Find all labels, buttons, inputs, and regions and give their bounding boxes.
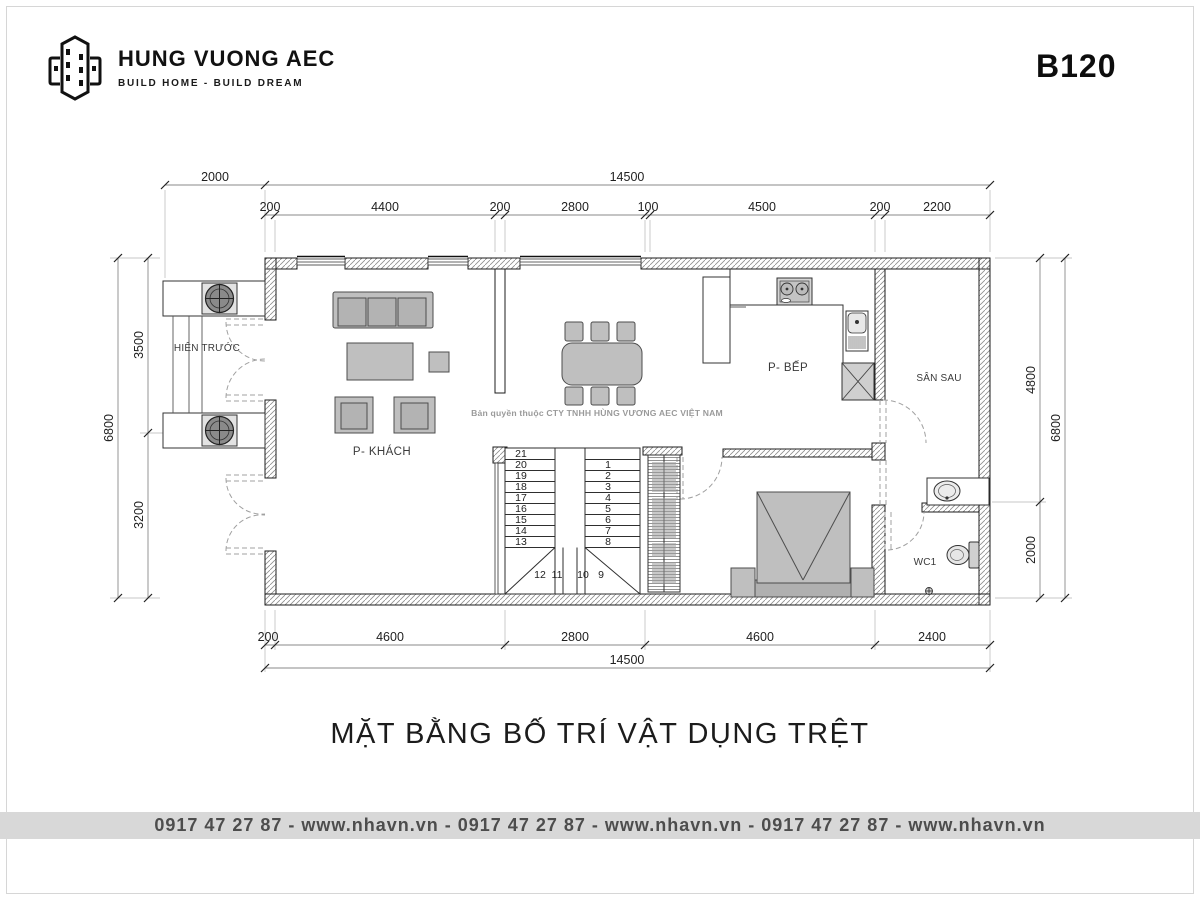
footer-contact-bar: 0917 47 27 87 - www.nhavn.vn - 0917 47 2… <box>0 812 1200 839</box>
svg-text:200: 200 <box>260 200 281 214</box>
partition-living-dining <box>495 269 505 393</box>
dining-set <box>562 322 642 405</box>
svg-text:3200: 3200 <box>132 501 146 529</box>
svg-text:4500: 4500 <box>748 200 776 214</box>
sofa <box>333 292 433 328</box>
dim-top-2000: 2000 <box>201 170 229 184</box>
bedroom <box>731 492 874 597</box>
plant-icon <box>206 285 234 313</box>
floor-drain-icon <box>926 588 933 595</box>
nightstand <box>731 568 755 597</box>
front-double-door-lower <box>226 475 265 554</box>
svg-text:13: 13 <box>515 536 527 548</box>
coffee-table <box>347 343 413 380</box>
armchair <box>394 397 435 433</box>
svg-text:100: 100 <box>638 200 659 214</box>
porch <box>163 281 265 448</box>
svg-text:14500: 14500 <box>610 653 645 667</box>
svg-text:8: 8 <box>605 536 611 548</box>
label-porch: HIÊN TRƯỚC <box>174 341 240 354</box>
louver-screen <box>648 455 680 592</box>
toilet-icon <box>947 542 979 568</box>
svg-text:4600: 4600 <box>746 630 774 644</box>
bed <box>757 492 850 583</box>
svg-text:200: 200 <box>258 630 279 644</box>
label-kitchen: P- BẾP <box>768 361 808 374</box>
svg-text:12: 12 <box>534 569 546 581</box>
drawing-sheet: HUNG VUONG AEC BUILD HOME - BUILD DREAM … <box>0 0 1200 900</box>
window-icon <box>428 257 468 266</box>
corridor-dashes <box>880 460 886 505</box>
svg-text:200: 200 <box>870 200 891 214</box>
fridge-space-icon <box>842 363 874 400</box>
svg-text:6800: 6800 <box>102 414 116 442</box>
dining-chair <box>591 387 609 405</box>
svg-text:4400: 4400 <box>371 200 399 214</box>
dining-table <box>562 343 642 385</box>
svg-text:10: 10 <box>577 569 589 581</box>
side-table <box>429 352 449 372</box>
svg-text:2800: 2800 <box>561 200 589 214</box>
svg-text:9: 9 <box>598 569 604 581</box>
svg-text:11: 11 <box>552 569 563 581</box>
dining-chair <box>591 322 609 341</box>
front-double-door-upper <box>226 319 265 401</box>
kitchen-cabinet <box>703 277 730 363</box>
basin-icon <box>927 478 989 505</box>
label-backyard: SÂN SAU <box>916 371 961 384</box>
svg-text:4600: 4600 <box>376 630 404 644</box>
svg-text:3500: 3500 <box>132 331 146 359</box>
svg-text:2200: 2200 <box>923 200 951 214</box>
kitchen-sink-icon <box>846 311 868 351</box>
plant-icon <box>206 417 234 445</box>
armchair <box>335 397 373 433</box>
svg-text:200: 200 <box>490 200 511 214</box>
backyard-door <box>880 400 926 443</box>
svg-text:2400: 2400 <box>918 630 946 644</box>
dining-chair <box>565 322 583 341</box>
living-room <box>333 292 449 433</box>
dining-chair <box>565 387 583 405</box>
svg-text:6800: 6800 <box>1049 414 1063 442</box>
window-icon <box>520 257 641 266</box>
label-living: P- KHÁCH <box>353 445 411 458</box>
window-icon <box>297 257 345 266</box>
porch-steps <box>173 316 202 413</box>
bedroom-door <box>677 457 722 499</box>
floor-plan: 2000 14500 200 4400 200 2800 100 4500 20… <box>0 0 1200 780</box>
svg-text:2000: 2000 <box>1024 536 1038 564</box>
svg-text:4800: 4800 <box>1024 366 1038 394</box>
dining-chair <box>617 387 635 405</box>
drawing-title: MẶT BẰNG BỐ TRÍ VẬT DỤNG TRỆT <box>0 718 1200 751</box>
wc-door <box>885 512 924 550</box>
nightstand <box>851 568 874 597</box>
kitchen <box>703 269 874 400</box>
stair-rail <box>495 463 498 594</box>
svg-text:2800: 2800 <box>561 630 589 644</box>
stove-icon <box>777 278 812 305</box>
label-wc: WC1 <box>914 557 937 568</box>
dim-top-14500: 14500 <box>610 170 645 184</box>
dining-chair <box>617 322 635 341</box>
copyright-watermark: Bản quyền thuộc CTY TNHH HÙNG VƯƠNG AEC … <box>471 407 723 418</box>
